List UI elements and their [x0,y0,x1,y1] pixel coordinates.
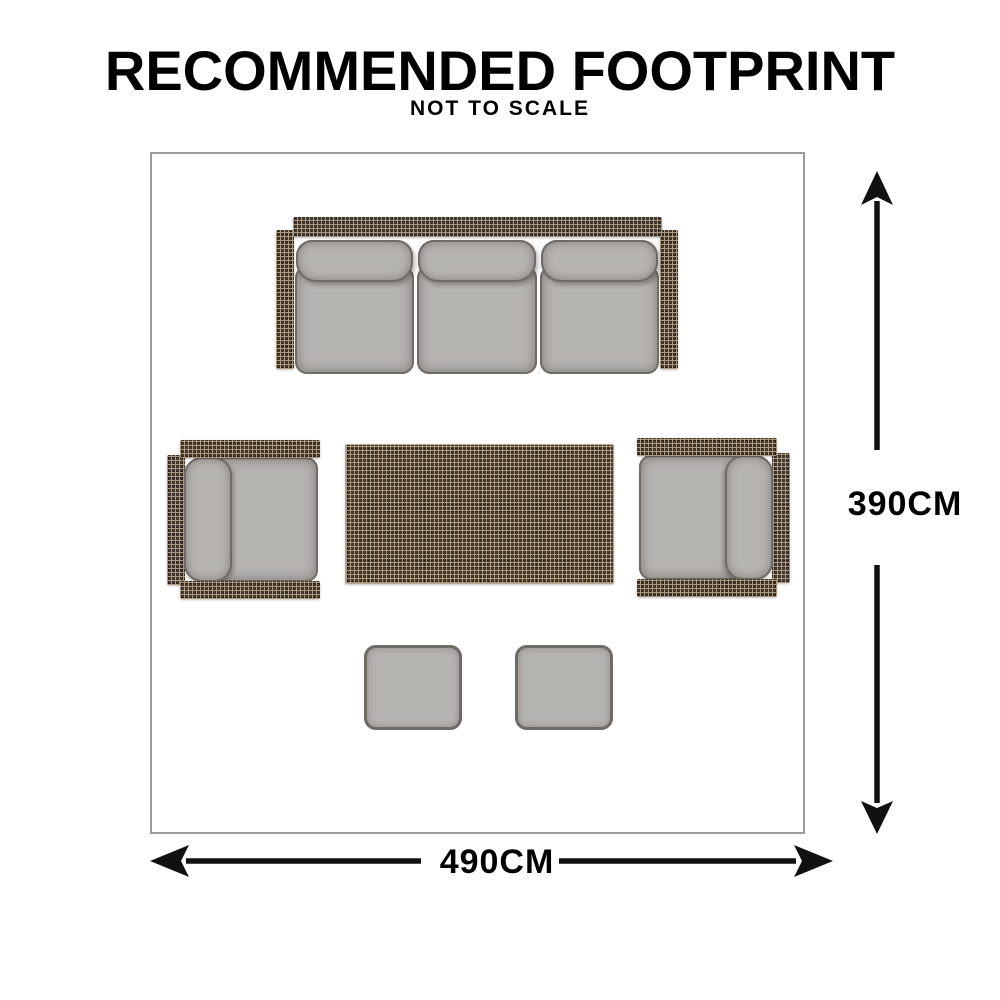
armchair-left-cushions [184,457,318,582]
armchair-right-arm-bottom [637,579,777,597]
armchair-left-backrest-frame [167,455,185,585]
armchair-right-backrest-frame [772,453,790,583]
armchair-right-icon [637,438,790,597]
sofa-left-arm [276,230,294,369]
sofa-backrest-frame [293,217,662,237]
sofa-cushions [295,240,659,374]
sofa-seat-cushion-1 [295,266,414,374]
armchair-left-back-cushion [184,457,232,582]
sofa-seat-cushion-2 [417,266,536,374]
ottoman-left-icon [364,645,462,730]
sofa-seat-3 [540,240,659,374]
footprint-area-outline [150,152,805,834]
armchair-right-arm-top [637,438,777,456]
sofa-seat-1 [295,240,414,374]
height-dimension-label: 390CM [843,487,967,521]
coffee-table-icon [345,444,614,584]
sofa-back-cushion-3 [541,240,658,282]
sofa-seat-2 [417,240,536,374]
sofa-back-cushion-1 [296,240,413,282]
footprint-diagram: RECOMMENDED FOOTPRINT NOT TO SCALE [0,0,1000,1000]
armchair-right-cushions [639,455,773,580]
width-dimension-label: 490CM [432,845,562,879]
sofa-right-arm [660,230,678,369]
sofa-icon [276,215,678,374]
armchair-left-arm-bottom [180,581,320,599]
page-title: RECOMMENDED FOOTPRINT [0,38,1000,103]
sofa-back-cushion-2 [418,240,535,282]
ottoman-right-icon [515,645,613,730]
page-subtitle: NOT TO SCALE [0,97,1000,121]
armchair-right-back-cushion [725,455,773,580]
armchair-left-arm-top [180,440,320,458]
sofa-seat-cushion-3 [540,266,659,374]
armchair-left-icon [167,440,320,599]
